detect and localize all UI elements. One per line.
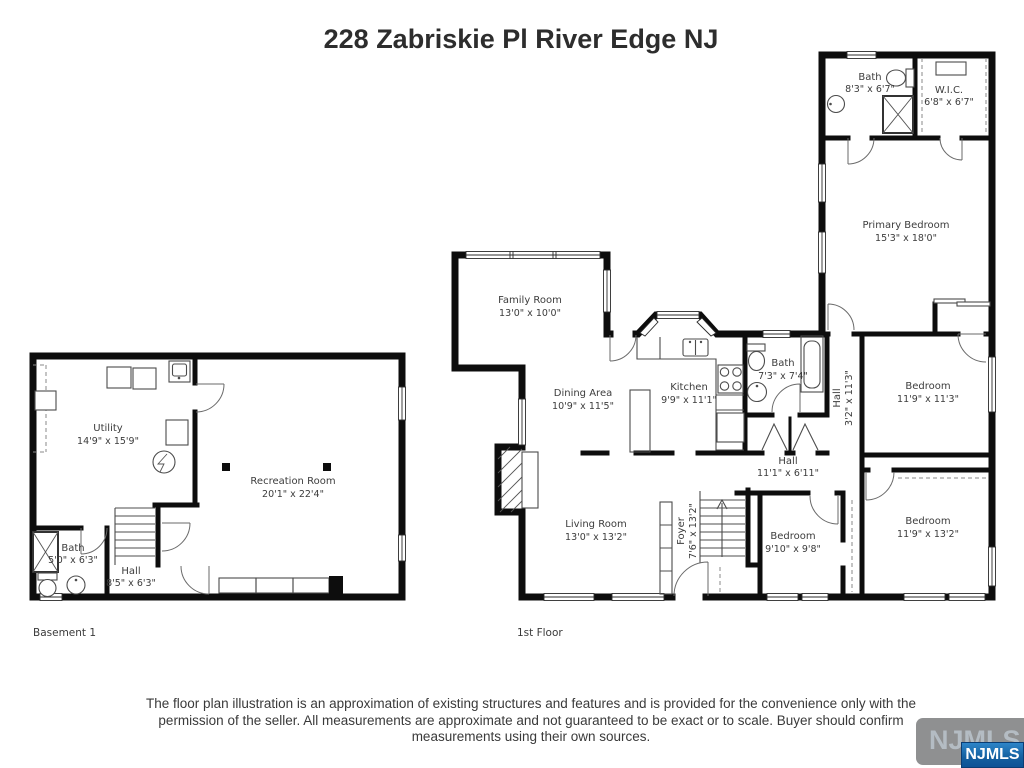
room-label-bath: Bath <box>61 543 84 554</box>
room-dims-hall-main: 11'1" x 6'11" <box>757 468 819 479</box>
floor-plan-canvas: Utility 14'9" x 15'9" Recreation Room 20… <box>0 0 1024 768</box>
disclaimer-line-1: The floor plan illustration is an approx… <box>38 696 1024 713</box>
basement-floor-label: Basement 1 <box>33 627 96 639</box>
support-post <box>222 463 230 471</box>
washer-fixture <box>107 367 131 388</box>
hearth <box>522 452 538 508</box>
basement-plan: Utility 14'9" x 15'9" Recreation Room 20… <box>33 356 406 601</box>
first-floor-plan: Bath 8'3" x 6'7" W.I.C. 6'8" x 6'7" Prim… <box>455 52 996 601</box>
utility-cabinet <box>166 420 188 445</box>
disclaimer-line-2: permission of the seller. All measuremen… <box>38 713 1024 730</box>
room-dims-dining: 10'9" x 11'5" <box>552 401 614 412</box>
basement-staircase <box>115 508 155 565</box>
water-heater-icon <box>153 451 175 473</box>
page-title: 228 Zabriskie Pl River Edge NJ <box>18 24 1024 55</box>
room-dims-foyer: 7'6" x 13'2" <box>688 503 699 559</box>
disclaimer-text: The floor plan illustration is an approx… <box>38 696 1024 746</box>
bench <box>219 578 256 593</box>
room-dims-wic: 6'8" x 6'7" <box>924 97 974 108</box>
room-label-hall: Hall <box>121 566 140 577</box>
fireplace <box>498 447 538 512</box>
room-dims-hall: 8'5" x 6'3" <box>106 578 156 589</box>
room-dims-primary: 15'3" x 18'0" <box>875 233 937 244</box>
room-dims-family: 13'0" x 10'0" <box>499 308 561 319</box>
first-floor-room-labels: Bath 8'3" x 6'7" W.I.C. 6'8" x 6'7" Prim… <box>498 72 974 559</box>
utility-sink-fixture <box>169 361 190 382</box>
room-label-bath-mid: Bath <box>771 358 794 369</box>
room-label-foyer: Foyer <box>676 516 687 545</box>
room-label-kitchen: Kitchen <box>670 382 708 393</box>
shower-fixture <box>33 532 58 572</box>
toilet-fixture <box>38 573 57 597</box>
sink-fixture <box>67 576 85 594</box>
support-post <box>323 463 331 471</box>
room-label-bedroom-ne: Bedroom <box>905 381 950 392</box>
room-label-bedroom-se: Bedroom <box>905 516 950 527</box>
room-label-wic: W.I.C. <box>935 85 963 96</box>
kitchen-island <box>630 390 650 452</box>
mid-bath-fixtures <box>747 336 823 450</box>
floor-plan-page: 228 Zabriskie Pl River Edge NJ <box>0 0 1024 768</box>
room-label-family: Family Room <box>498 295 562 306</box>
kitchen-sink-fixture <box>683 339 708 356</box>
wall-notch <box>329 576 343 597</box>
room-label-recreation: Recreation Room <box>250 476 335 487</box>
bench <box>293 578 329 593</box>
room-label-dining: Dining Area <box>554 388 612 399</box>
room-dims-bath-mid: 7'3" x 7'4" <box>758 371 808 382</box>
room-label-hall-vert: Hall <box>832 388 843 407</box>
room-label-primary: Primary Bedroom <box>862 220 949 231</box>
room-dims-living: 13'0" x 13'2" <box>565 532 627 543</box>
room-label-bath-top: Bath <box>858 72 881 83</box>
shower-fixture <box>883 96 913 133</box>
first-floor-label: 1st Floor <box>517 627 563 639</box>
disclaimer-line-3: measurements using their own sources. <box>38 729 1024 746</box>
room-dims-bath: 5'0" x 6'3" <box>48 555 98 566</box>
room-label-utility: Utility <box>93 423 122 434</box>
sink-fixture <box>828 96 845 113</box>
room-label-bedroom-sw: Bedroom <box>770 531 815 542</box>
utility-fixtures <box>33 361 190 473</box>
stove-fixture <box>718 365 743 393</box>
storage-box <box>35 391 56 410</box>
room-dims-bedroom-ne: 11'9" x 11'3" <box>897 394 959 405</box>
room-dims-kitchen: 9'9" x 11'1" <box>661 395 717 406</box>
dryer-fixture <box>133 368 156 389</box>
first-floor-doors <box>610 138 986 596</box>
room-dims-bath-top: 8'3" x 6'7" <box>845 84 895 95</box>
sink-fixture <box>748 383 767 402</box>
basement-doors <box>81 384 224 594</box>
bathtub-fixture <box>801 336 823 392</box>
primary-closet <box>934 299 990 306</box>
first-floor-staircase <box>700 491 745 563</box>
room-label-living: Living Room <box>565 519 626 530</box>
room-dims-recreation: 20'1" x 22'4" <box>262 489 324 500</box>
room-label-hall-main: Hall <box>778 456 797 467</box>
basement-windows <box>40 387 406 601</box>
foyer-closet <box>660 502 672 594</box>
njmls-logo-badge: NJMLS <box>961 742 1024 768</box>
room-dims-bedroom-sw: 9'10" x 9'8" <box>765 544 821 555</box>
room-dims-utility: 14'9" x 15'9" <box>77 436 139 447</box>
refrigerator-fixture <box>717 413 744 442</box>
toilet-fixture <box>747 344 765 371</box>
closet-shelf <box>936 62 966 75</box>
room-dims-bedroom-se: 11'9" x 13'2" <box>897 529 959 540</box>
bench <box>256 578 293 593</box>
room-dims-hall-vert: 3'2" x 11'3" <box>844 370 855 426</box>
